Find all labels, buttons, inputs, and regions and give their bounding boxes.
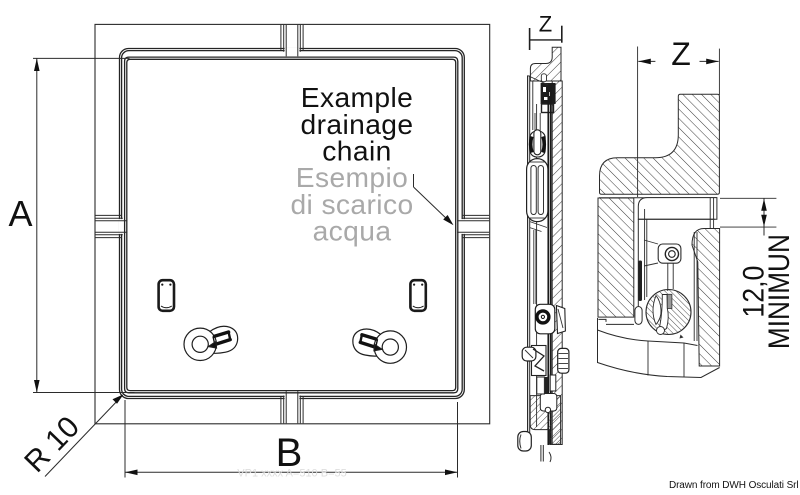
svg-text:Z: Z (539, 12, 552, 37)
svg-text:Drawn from DWH Osculati Srl: Drawn from DWH Osculati Srl (669, 480, 799, 490)
svg-text:Z: Z (671, 36, 691, 72)
svg-text:VP1 xxxx A=510 B=55: VP1 xxxx A=510 B=55 (237, 468, 346, 480)
svg-text:A: A (8, 193, 32, 234)
svg-text:MINIMUN: MINIMUN (763, 234, 796, 349)
svg-text:acqua: acqua (313, 215, 392, 247)
